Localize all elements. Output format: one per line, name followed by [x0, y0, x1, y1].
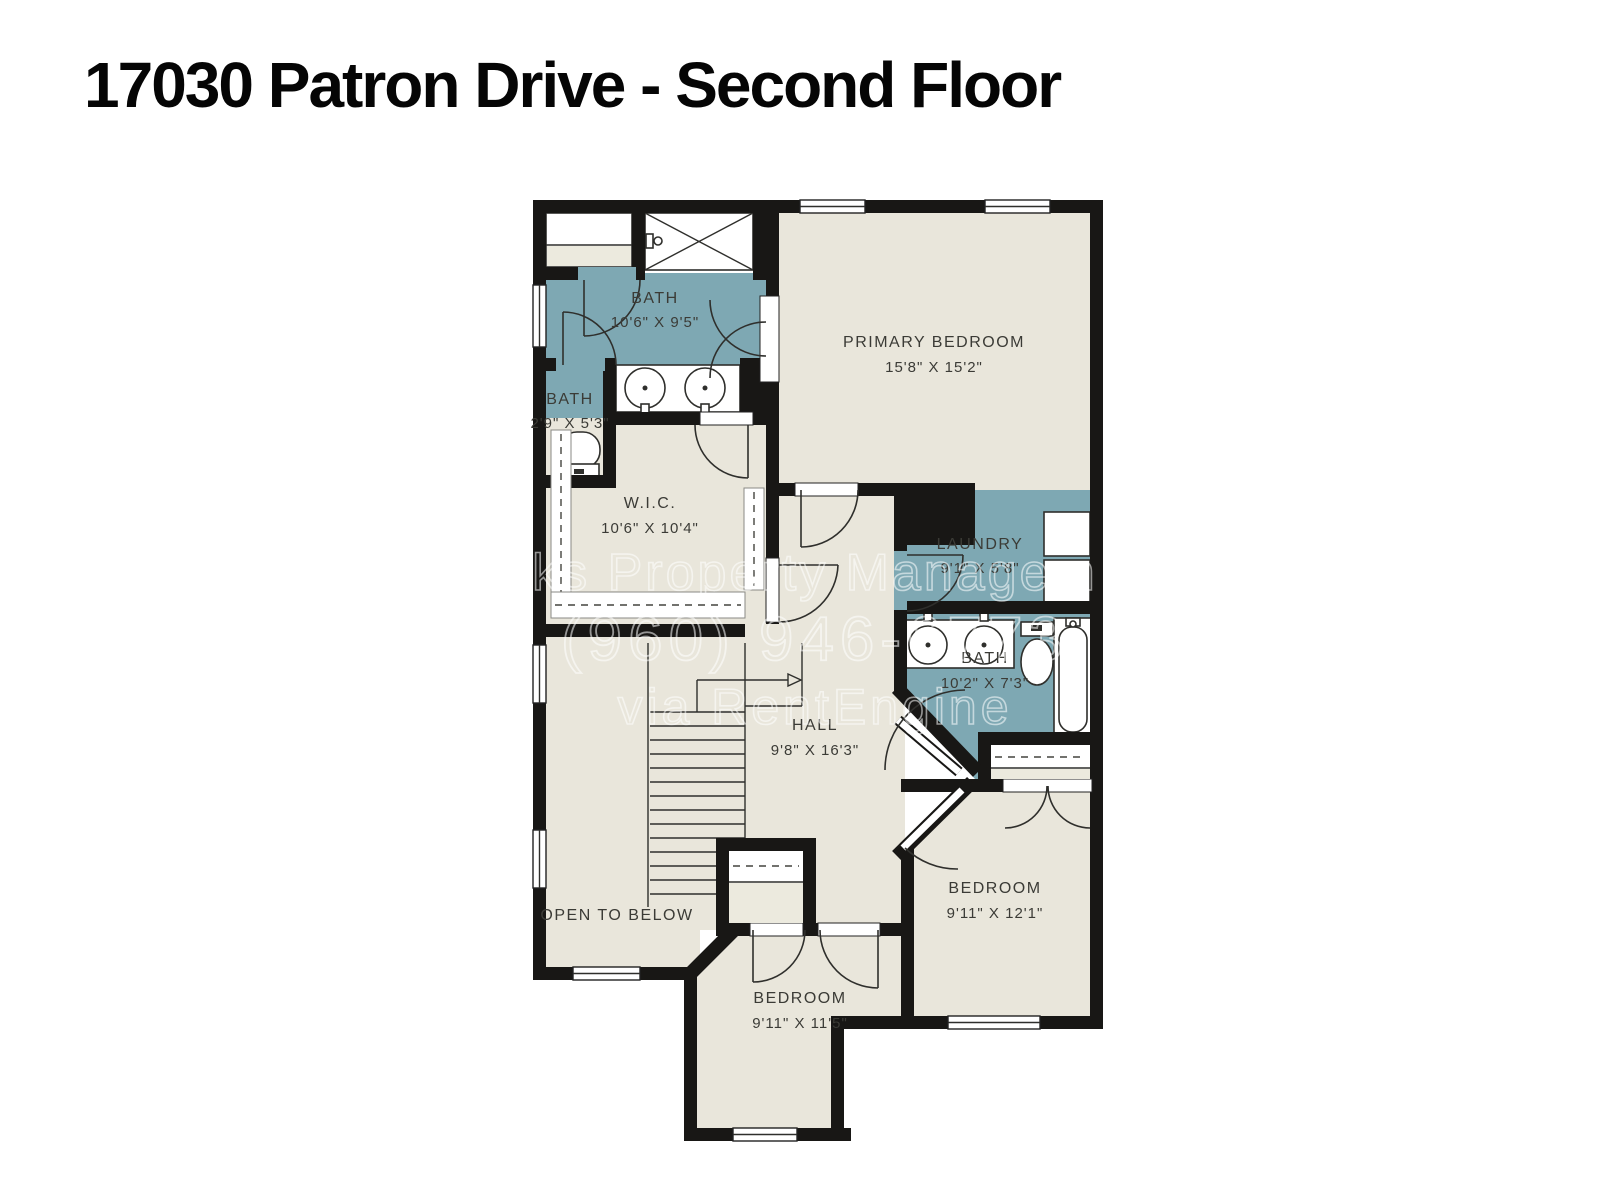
- right-bedroom-closet: [991, 745, 1090, 779]
- window: [985, 200, 1050, 213]
- room-label-bedroom-left: BEDROOM: [753, 990, 846, 1007]
- window: [733, 1128, 797, 1141]
- room-label-open-to-below: OPEN TO BELOW: [540, 907, 693, 924]
- window: [800, 200, 865, 213]
- window: [573, 967, 640, 980]
- shower-fixture: [645, 213, 753, 270]
- watermark-line3: via RentEngine: [617, 679, 1012, 735]
- room-dims-wic: 10'6" X 10'4": [601, 520, 699, 537]
- window: [533, 830, 546, 888]
- room-label-bedroom-right: BEDROOM: [948, 880, 1041, 897]
- room-label-bath-primary: BATH: [631, 290, 678, 307]
- room-dims-bedroom-left: 9'11" X 11'5": [752, 1015, 848, 1032]
- room-label-bath-small: BATH: [546, 391, 593, 408]
- watermark-line2: (960) 946-6773: [561, 605, 1069, 674]
- room-label-primary-bedroom: PRIMARY BEDROOM: [843, 334, 1025, 351]
- page-title: 17030 Patron Drive - Second Floor: [84, 48, 1060, 122]
- room-dims-hall: 9'8" X 16'3": [771, 742, 859, 759]
- room-dims-bath-small: 2'9" X 5'3": [530, 415, 609, 432]
- vanity-primary-bath: [616, 365, 740, 414]
- watermark-line1: ks Property Managem: [532, 544, 1098, 602]
- floor-plan-page: 17030 Patron Drive - Second Floor: [0, 0, 1600, 1200]
- floor-plan: BATH 10'6" X 9'5" BATH 2'9" X 5'3" PRIMA…: [530, 195, 1110, 1150]
- room-dims-bedroom-right: 9'11" X 12'1": [947, 905, 1044, 922]
- room-label-wic: W.I.C.: [624, 495, 677, 512]
- left-bedroom-closet: [729, 851, 803, 923]
- room-dims-primary-bedroom: 15'8" X 15'2": [885, 359, 983, 376]
- linen-closet: [546, 213, 632, 267]
- window: [533, 285, 546, 347]
- room-dims-bath-primary: 10'6" X 9'5": [611, 314, 699, 331]
- window: [533, 645, 546, 703]
- window: [948, 1016, 1040, 1029]
